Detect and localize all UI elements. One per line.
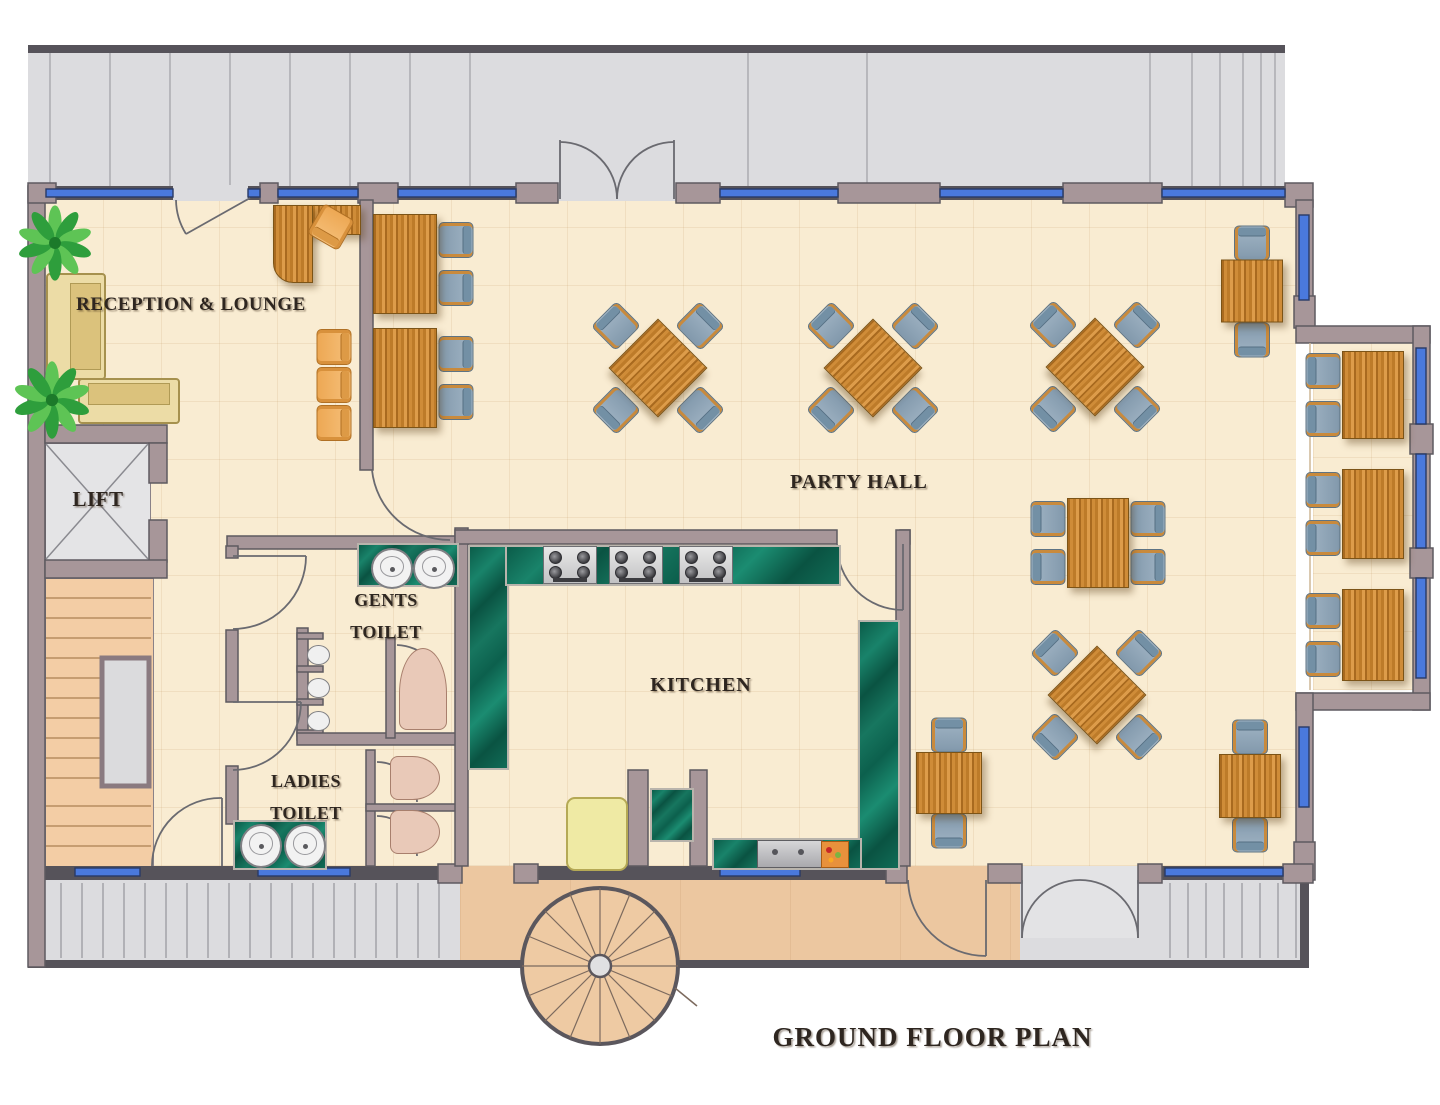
chair — [1234, 322, 1270, 357]
chair — [1131, 501, 1166, 537]
plant — [18, 366, 86, 434]
dining-table — [373, 214, 437, 314]
toilet — [390, 756, 440, 800]
chair — [931, 814, 967, 849]
waiting-chair — [317, 329, 352, 365]
label-ladies-toilet: LADIES TOILET — [244, 766, 368, 829]
dining-table — [916, 752, 982, 814]
plan-title: GROUND FLOOR PLAN — [760, 1022, 1105, 1053]
cutting-board — [821, 841, 849, 868]
label-lift: LIFT — [52, 487, 144, 512]
urinal — [307, 678, 330, 698]
chair — [1131, 549, 1166, 585]
dining-table — [1342, 589, 1404, 681]
chair — [1031, 549, 1066, 585]
chair — [1306, 401, 1341, 437]
lounge-sofa — [78, 378, 180, 424]
chair — [439, 336, 474, 372]
chair — [1306, 641, 1341, 677]
wash-basin — [413, 548, 455, 589]
counter-green-marble — [858, 620, 900, 870]
dining-table — [1342, 351, 1404, 439]
kitchen-sink — [757, 840, 823, 868]
waiting-chair — [317, 367, 352, 403]
urinal — [307, 711, 330, 731]
chair — [1306, 353, 1341, 389]
wash-basin — [240, 824, 282, 868]
chair — [1306, 593, 1341, 629]
chair — [1232, 720, 1268, 755]
chair — [439, 222, 474, 258]
waiting-chair — [317, 405, 352, 441]
reception-desk-side — [273, 205, 313, 283]
label-gents-toilet: GENTS TOILET — [328, 585, 444, 648]
chair — [1306, 520, 1341, 556]
counter-green-marble — [650, 788, 694, 842]
wash-basin — [284, 824, 326, 868]
wash-basin — [371, 548, 413, 589]
dining-table — [373, 328, 437, 428]
chair — [439, 270, 474, 306]
dining-table — [1221, 260, 1283, 323]
label-party-hall: PARTY HALL — [783, 471, 935, 494]
gas-stove — [679, 546, 733, 584]
chair — [439, 384, 474, 420]
dining-table — [1219, 754, 1281, 818]
dining-table — [1342, 469, 1404, 559]
counter-green-marble — [468, 545, 509, 770]
label-kitchen: KITCHEN — [640, 674, 762, 697]
toilet — [399, 648, 447, 730]
chair — [931, 718, 967, 753]
gas-stove — [543, 546, 597, 584]
chair — [1306, 472, 1341, 508]
furniture-layer — [0, 0, 1440, 1105]
label-reception-lounge: RECEPTION & LOUNGE — [60, 294, 322, 316]
urinal — [307, 645, 330, 665]
chair — [1232, 818, 1268, 853]
toilet — [390, 810, 440, 854]
floor-plan: RECEPTION & LOUNGE LIFT GENTS TOILET LAD… — [0, 0, 1440, 1105]
plant — [22, 210, 88, 276]
dining-table — [1067, 498, 1129, 588]
chair — [1031, 501, 1066, 537]
chair — [1234, 225, 1270, 260]
refrigerator — [566, 797, 628, 871]
gas-stove — [609, 546, 663, 584]
